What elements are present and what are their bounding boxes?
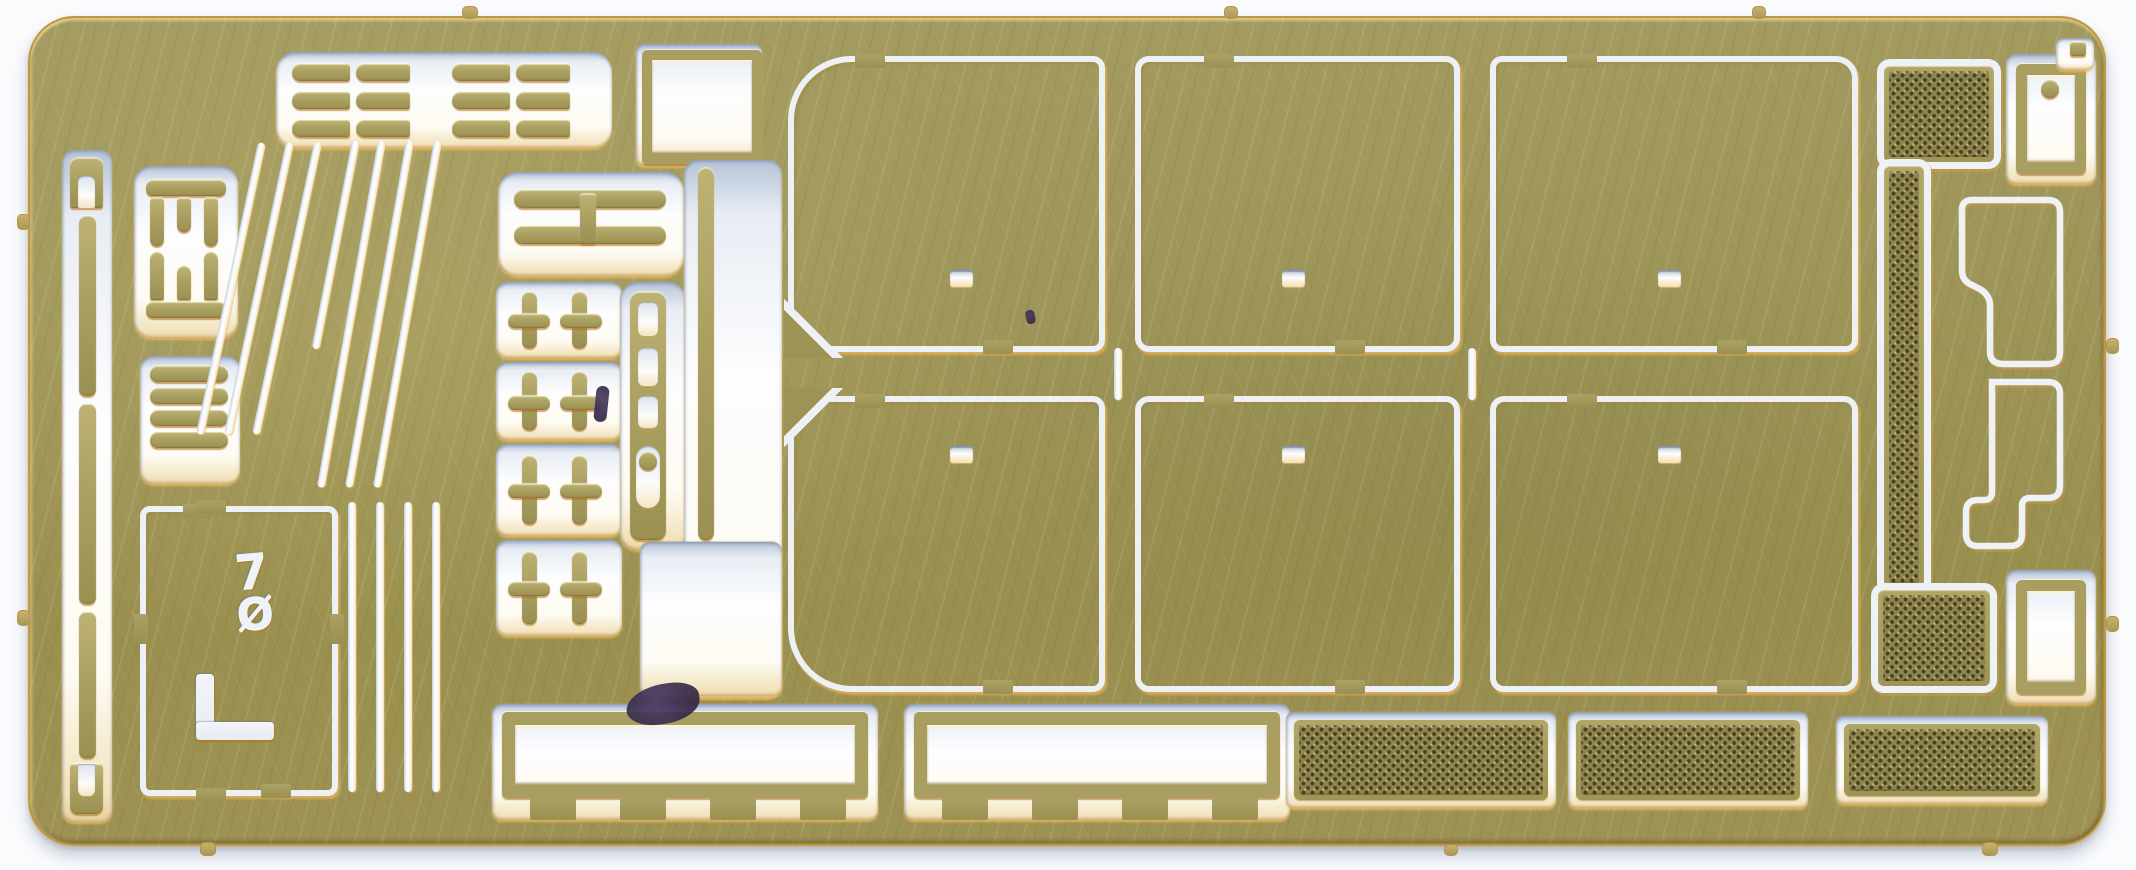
panel-hole [950, 446, 973, 463]
mesh-grille [1576, 720, 1800, 800]
clasp-notch [638, 348, 658, 386]
sprue-tab-bottom-1 [200, 842, 216, 856]
hinge-bar [452, 120, 510, 137]
clasp-notch [638, 302, 658, 336]
u-bracket-notch [78, 764, 95, 796]
mesh-texture [1889, 171, 1919, 583]
hatch-panel-r1c2 [1135, 56, 1460, 352]
hinge-bar [516, 120, 570, 137]
panel-chamfer-corner [784, 258, 884, 358]
mesh-texture [1849, 729, 2035, 791]
hinge-bar [292, 64, 350, 81]
panel-attachment-tab [134, 614, 148, 644]
carrier-slot [1468, 348, 1476, 400]
panel-hole [1282, 270, 1305, 287]
clasp-notch [638, 396, 658, 428]
sprue-tab-left-1 [17, 214, 30, 230]
ring-plate-part [2016, 580, 2086, 694]
hinge-bar [356, 92, 410, 109]
mesh-texture [1581, 725, 1795, 795]
flat-bar [150, 432, 228, 448]
sprue-tab-top-3 [1752, 6, 1766, 19]
hinge-bar [516, 64, 570, 81]
hinge-bar [452, 92, 510, 109]
comb-tooth [150, 252, 164, 300]
comb-tooth [177, 266, 191, 300]
panel-attachment-tab [196, 500, 226, 514]
cross-bracket-arm [508, 396, 550, 410]
long-thin-strip [698, 168, 714, 540]
ring-plate-disc [2041, 80, 2059, 98]
castellation-tooth [800, 798, 846, 820]
hinge-bar [356, 120, 410, 137]
cross-bracket-arm [508, 582, 550, 596]
n-bracket-notch [78, 176, 95, 208]
sprue-tab-top-2 [1224, 6, 1238, 19]
cross-bracket-arm [508, 314, 550, 328]
mesh-screen-top [1884, 66, 1994, 162]
hinge-bar [292, 120, 350, 137]
long-strip-segment [79, 216, 96, 396]
sprue-tab-right-2 [2106, 616, 2119, 632]
window-frame-part [502, 712, 868, 798]
flat-bar [150, 388, 228, 404]
comb-bracket-bar [146, 302, 226, 318]
panel-hole [1658, 446, 1681, 463]
mesh-texture [1883, 595, 1985, 681]
sprue-tab-bottom-3 [1982, 842, 1998, 856]
etched-part-number: 7 Ø [210, 547, 298, 654]
channel-bottom-opening [640, 542, 782, 696]
panel-hole [950, 270, 973, 287]
stepped-bracket-outline [1928, 184, 2092, 576]
hatch-panel-r1c3 [1490, 56, 1858, 352]
comb-tooth [204, 198, 218, 246]
bend-mark-L-horizontal [196, 722, 274, 740]
long-strip-segment [79, 404, 96, 604]
castellation-tooth [620, 798, 666, 820]
sprue-tab-right-1 [2106, 338, 2119, 354]
vertical-strip-slot [376, 502, 384, 792]
flat-bar [150, 410, 228, 426]
double-bar-link [580, 194, 596, 244]
mesh-grille [1844, 724, 2040, 796]
scanner-background: 7 Ø [0, 0, 2136, 870]
castellation-tooth [1212, 798, 1258, 820]
castellation-tooth [1122, 798, 1168, 820]
corner-notch-tab [2070, 42, 2086, 56]
vertical-strip-slot [348, 502, 356, 792]
mesh-screen-bottom [1878, 590, 1990, 686]
comb-tooth [177, 198, 191, 232]
panel-hole [1658, 270, 1681, 287]
comb-bracket-bar [146, 180, 226, 196]
mesh-screen-strip [1884, 166, 1924, 588]
mesh-grille [1294, 720, 1548, 800]
castellation-tooth [710, 798, 756, 820]
comb-tooth [204, 252, 218, 300]
panel-attachment-tab [196, 788, 226, 802]
castellation-tooth [1032, 798, 1078, 820]
comb-tooth [150, 198, 164, 246]
carrier-slot [1114, 348, 1122, 400]
clasp-disc [639, 452, 657, 470]
panel-attachment-tab [330, 614, 344, 644]
hinge-bar [356, 64, 410, 81]
sprue-tab-top-1 [462, 6, 478, 19]
hinge-bar [516, 92, 570, 109]
cross-bracket-arm [560, 484, 602, 498]
vertical-strip-slot [432, 502, 440, 792]
hatch-panel-r2c3 [1490, 396, 1858, 692]
sprue-tab-bottom-2 [1444, 844, 1458, 856]
hinge-bar [292, 92, 350, 109]
castellation-tooth [942, 798, 988, 820]
cross-bracket-arm [560, 582, 602, 596]
hinge-bar [452, 64, 510, 81]
cross-bracket-arm [560, 314, 602, 328]
hatch-panel-r2c2 [1135, 396, 1460, 692]
panel-hole [1282, 446, 1305, 463]
castellation-tooth [530, 798, 576, 820]
cross-bracket-arm [508, 484, 550, 498]
panel-chamfer-corner [784, 388, 884, 488]
sprue-tab-left-2 [17, 610, 30, 626]
framed-square-part [642, 50, 762, 164]
long-strip-segment [79, 612, 96, 758]
mesh-texture [1889, 71, 1989, 157]
vertical-strip-slot [404, 502, 412, 792]
mesh-texture [1299, 725, 1543, 795]
window-frame-part [914, 712, 1280, 798]
etched-glyph-oslash: Ø [214, 591, 297, 640]
